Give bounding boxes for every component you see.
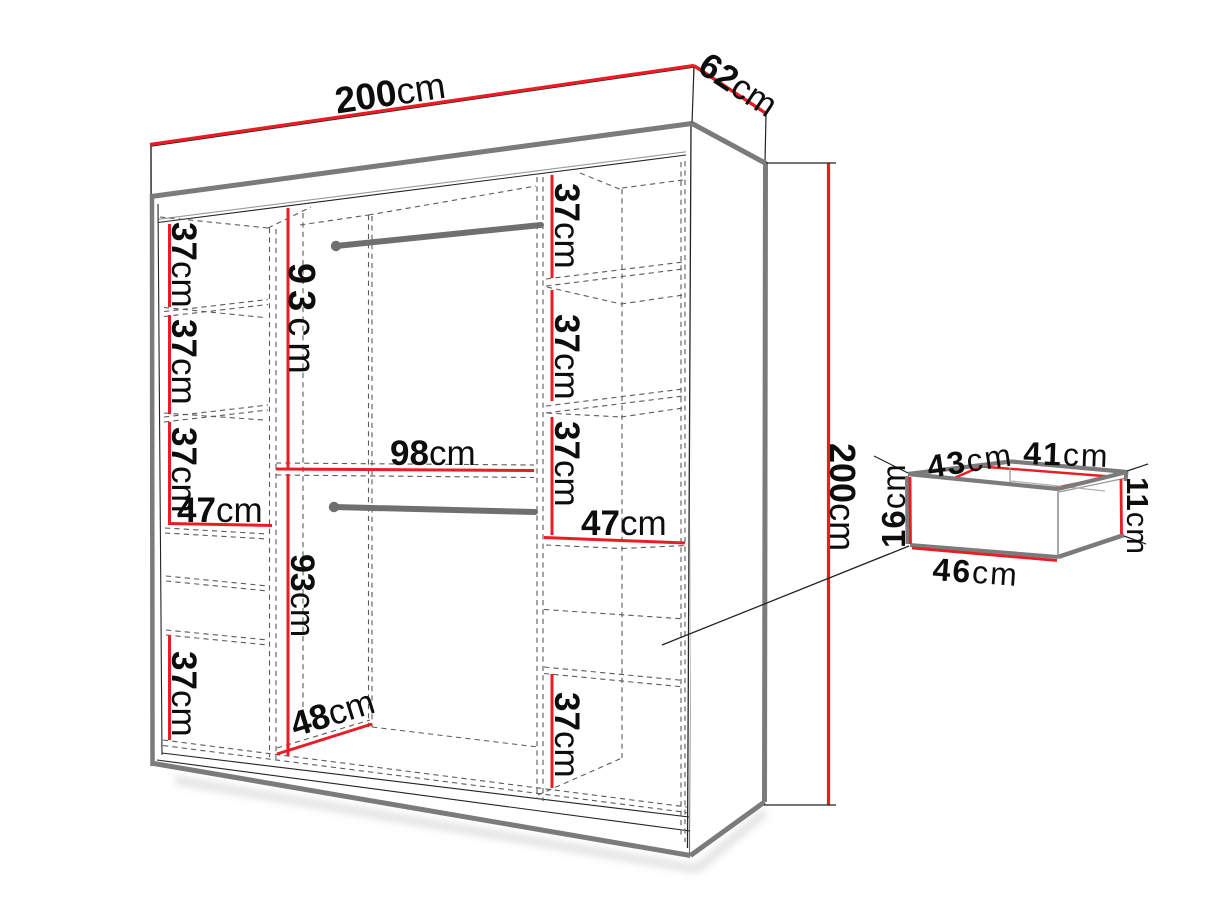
svg-text:37cm: 37cm (547, 314, 586, 400)
svg-text:37cm: 37cm (547, 421, 586, 507)
svg-text:93cm: 93cm (280, 263, 322, 380)
svg-text:37cm: 37cm (164, 319, 203, 405)
svg-text:93cm: 93cm (283, 554, 321, 637)
svg-text:37cm: 37cm (547, 183, 586, 269)
svg-text:41cm: 41cm (1023, 435, 1110, 474)
svg-text:200cm: 200cm (822, 443, 863, 551)
svg-text:37cm: 37cm (164, 651, 203, 737)
svg-text:11cm: 11cm (1120, 477, 1155, 555)
svg-text:37cm: 37cm (547, 692, 586, 778)
svg-text:98cm: 98cm (390, 434, 476, 473)
svg-text:16cm: 16cm (875, 463, 912, 548)
svg-text:47cm: 47cm (581, 504, 667, 543)
svg-text:37cm: 37cm (164, 222, 203, 308)
svg-text:46cm: 46cm (932, 551, 1021, 593)
svg-text:47cm: 47cm (177, 491, 263, 530)
